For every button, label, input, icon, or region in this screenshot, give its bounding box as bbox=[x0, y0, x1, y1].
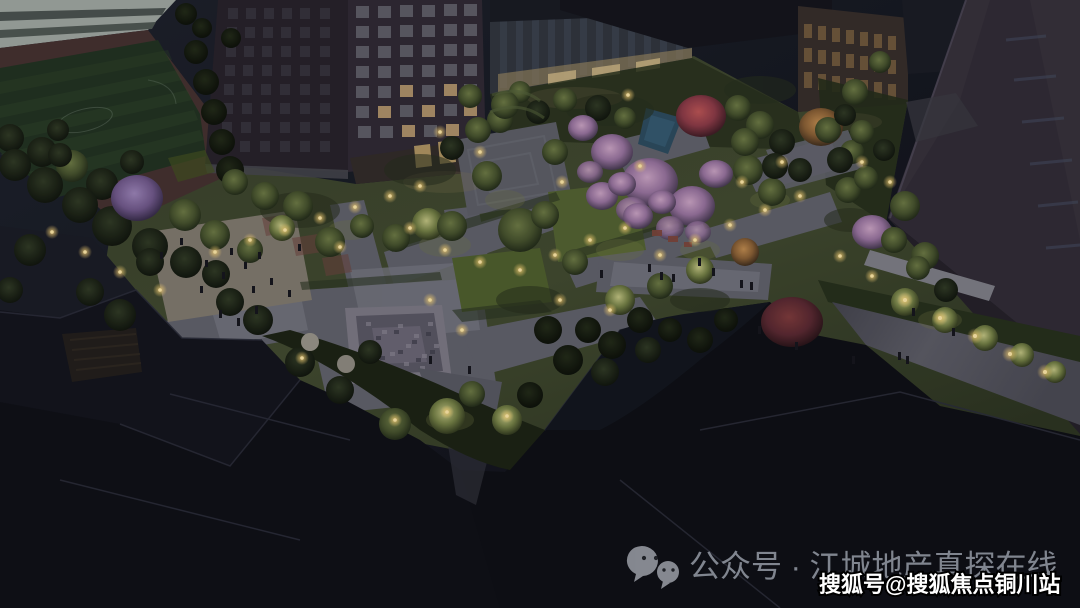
svg-text:搜狐号@搜狐焦点铜川站: 搜狐号@搜狐焦点铜川站 bbox=[819, 572, 1060, 597]
